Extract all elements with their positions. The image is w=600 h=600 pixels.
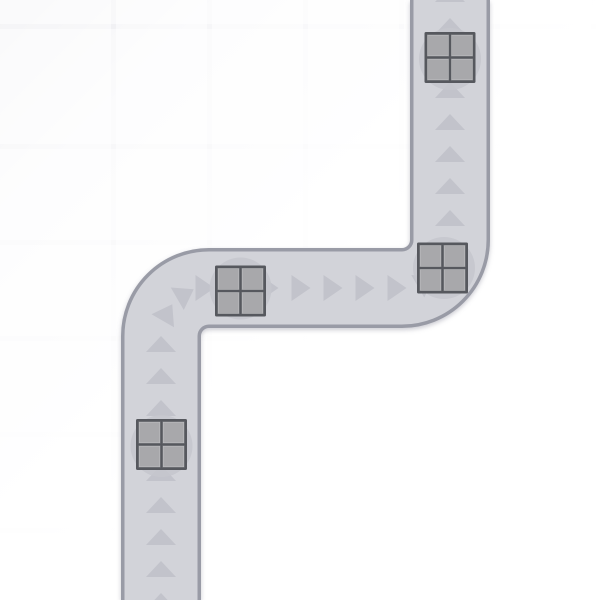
crate-panel	[163, 422, 184, 443]
crate[interactable]	[215, 266, 266, 317]
crate[interactable]	[136, 419, 187, 470]
crate-panel	[452, 59, 473, 80]
crate-panel	[139, 422, 160, 443]
crate-panel	[242, 293, 263, 314]
crate[interactable]	[425, 32, 476, 83]
crate-panel	[428, 35, 449, 56]
crate-panel	[139, 446, 160, 467]
crate[interactable]	[417, 243, 468, 294]
crate-panel	[452, 35, 473, 56]
crate-panel	[218, 269, 239, 290]
crate-panel	[242, 269, 263, 290]
road-surface	[161, 0, 450, 600]
crate-panel	[420, 270, 441, 291]
crate-panel	[428, 59, 449, 80]
crate-panel	[444, 246, 465, 267]
crate-panel	[218, 293, 239, 314]
crate-panel	[420, 246, 441, 267]
arrow-up-icon	[435, 0, 465, 2]
crate-panel	[444, 270, 465, 291]
path-scene	[0, 0, 600, 600]
game-board[interactable]	[0, 0, 600, 600]
road-path	[161, 0, 450, 600]
crate-panel	[163, 446, 184, 467]
